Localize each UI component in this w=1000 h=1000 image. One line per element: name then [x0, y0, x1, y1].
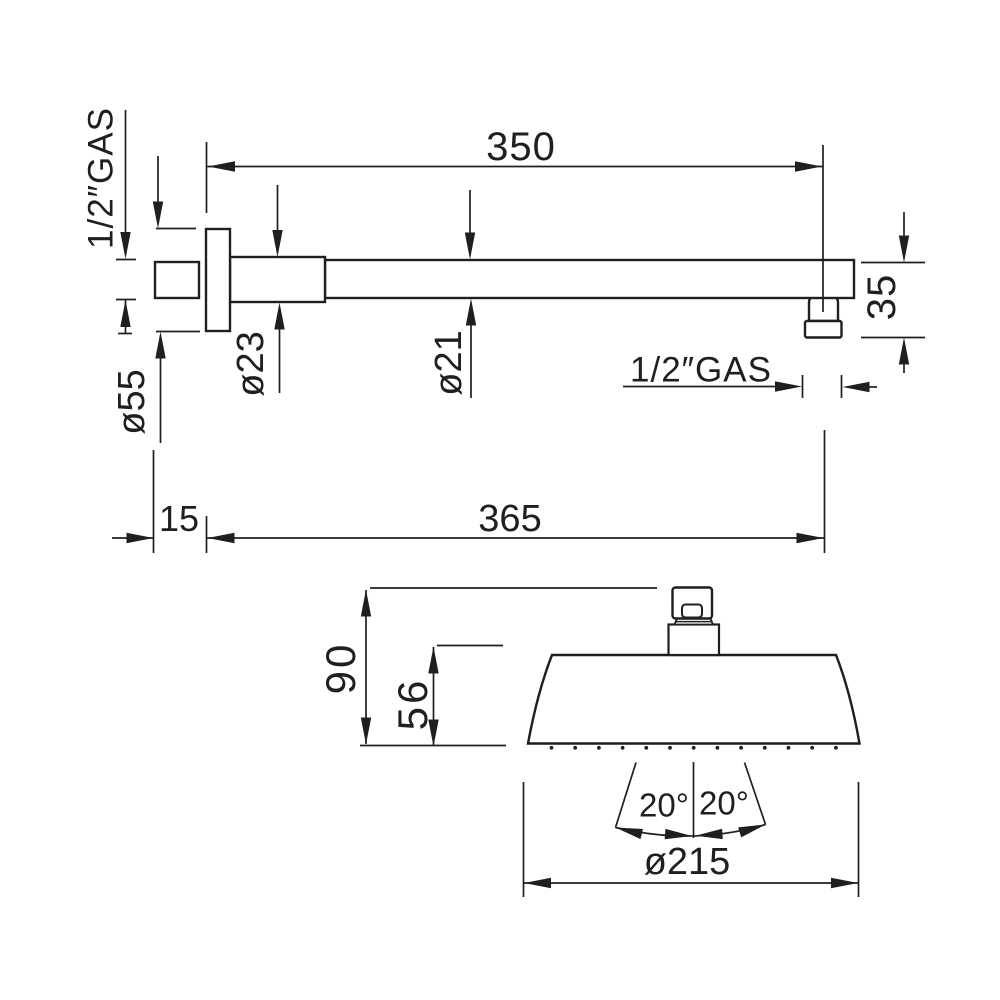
head-connector-block: [669, 625, 720, 656]
dim-15-label: 15: [159, 501, 199, 537]
dim-56: [434, 646, 504, 747]
wall-thread-label: 1/2″GAS: [84, 107, 119, 249]
shower-head-outline: [528, 588, 860, 744]
dim-35-label: 35: [862, 274, 902, 321]
arm-root: [230, 257, 325, 302]
arm-root-diameter-label: ø23: [232, 331, 270, 396]
wall-flange: [206, 229, 230, 331]
head-diameter-label: ø215: [644, 843, 731, 881]
spray-angle-left-label: 20°: [639, 789, 689, 822]
head-body: [528, 655, 860, 744]
dim-56-label: 56: [392, 678, 434, 731]
dim-350-label: 350: [486, 127, 556, 167]
arm-tube: [325, 260, 854, 298]
dim-15-365: [112, 430, 825, 553]
head-nozzles: [550, 746, 838, 750]
arm-diameter-label: ø21: [430, 330, 468, 395]
arm-outlet-nut: [805, 321, 842, 338]
shower-arm-outline: [155, 229, 854, 338]
spray-angle-right-label: 20°: [699, 787, 749, 820]
wall-thread-stub: [155, 262, 199, 298]
dim-90-label: 90: [320, 642, 362, 695]
dim-365-label: 365: [478, 500, 541, 538]
flange-diameter-label: ø55: [113, 369, 151, 434]
outlet-thread-label: 1/2″GAS: [630, 353, 772, 388]
dim-flange-diameter: [156, 156, 200, 443]
head-swivel-notch: [682, 605, 702, 618]
technical-drawing-shower-arm-and-head: 350 1/2″GAS ø55 ø23 ø21 1/2″GAS 35 15 36…: [0, 0, 1000, 1000]
